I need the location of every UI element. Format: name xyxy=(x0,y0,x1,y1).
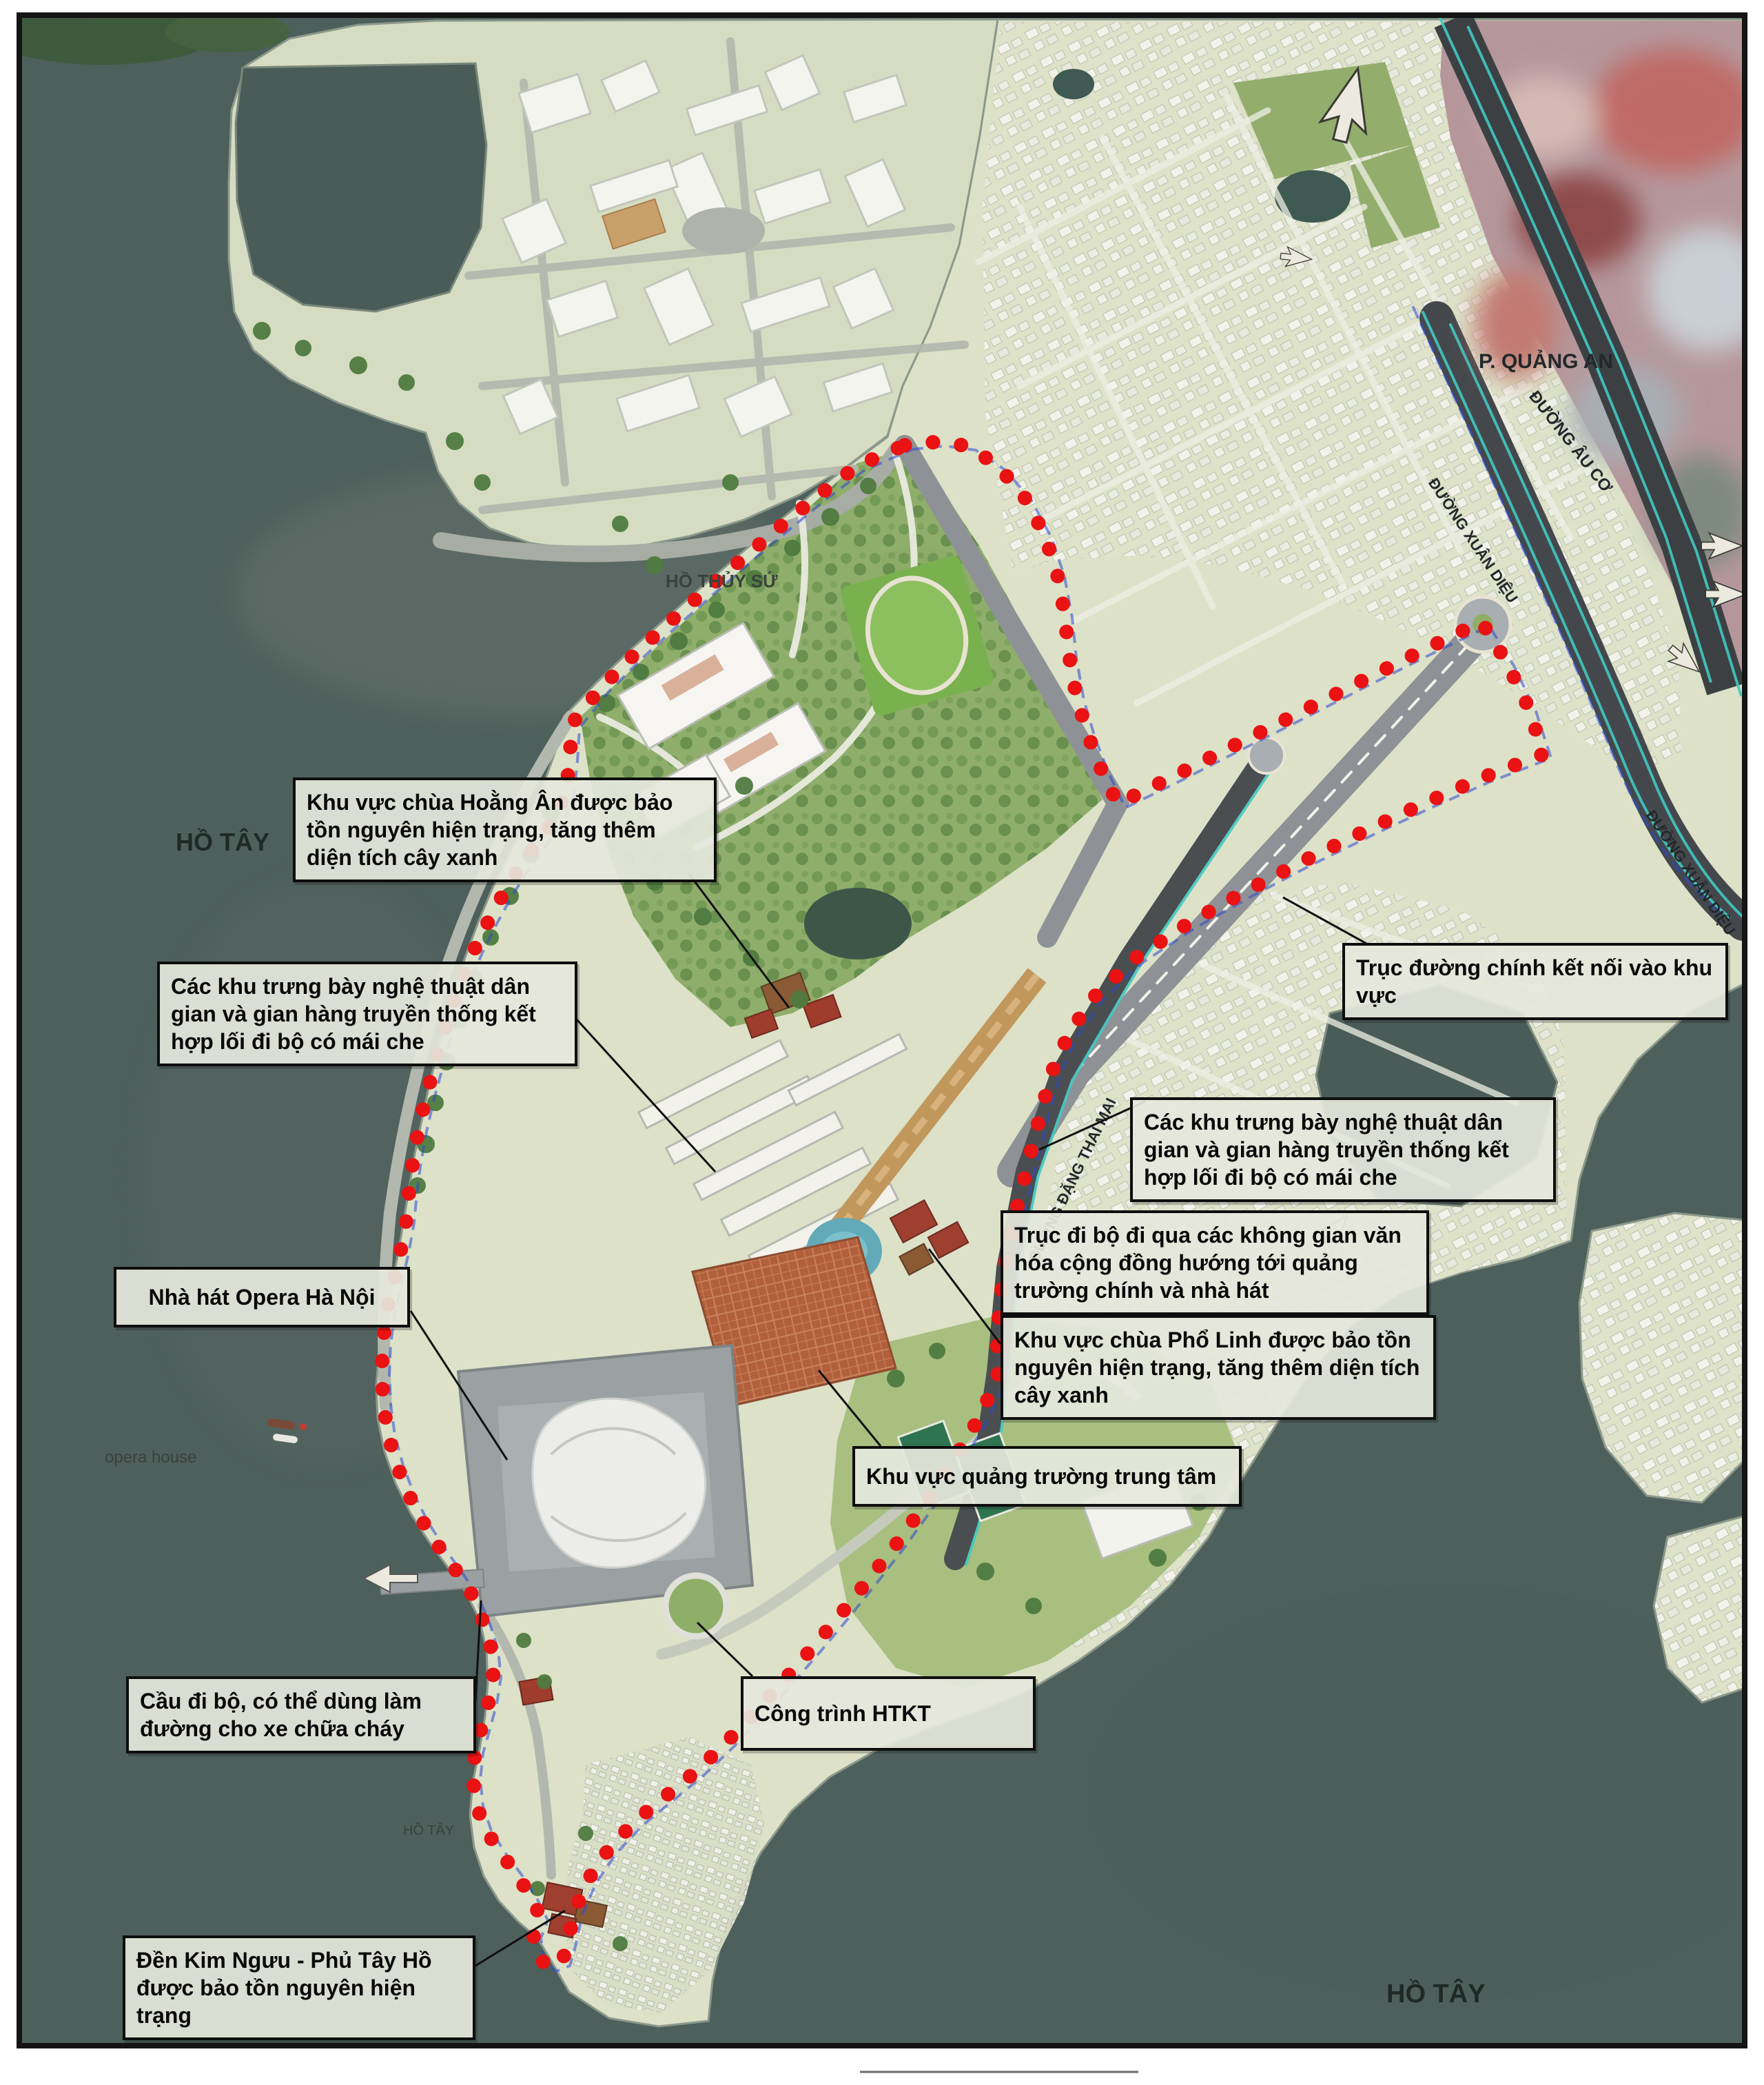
callout-text: Nhà hát Opera Hà Nội xyxy=(149,1285,376,1310)
callout-text: Trục đi bộ đi qua các không gian văn hóa… xyxy=(1014,1223,1402,1303)
callout-text: Các khu trưng bày nghệ thuật dân gian và… xyxy=(1144,1110,1509,1190)
callout-truc-duong-chinh: Trục đường chính kết nối vào khu vực xyxy=(1342,943,1728,1020)
callout-text: Khu vực chùa Hoằng Ân được bảo tồn nguyê… xyxy=(307,790,673,870)
label-ho-thuy-su: HỒ THỦY SỨ xyxy=(666,570,778,591)
label-opera-house-en: opera house xyxy=(105,1448,196,1467)
callout-text: Các khu trưng bày nghệ thuật dân gian và… xyxy=(171,974,536,1054)
htkt-structure xyxy=(666,1576,726,1636)
callout-text: Khu vực quảng trường trung tâm xyxy=(866,1464,1216,1489)
callout-text: Cầu đi bộ, có thể dùng làm đường cho xe … xyxy=(140,1689,422,1741)
label-ho-tay-south: HỒ TÂY xyxy=(1386,1978,1486,2008)
callout-truc-di-bo: Trục đi bộ đi qua các không gian văn hóa… xyxy=(1001,1210,1429,1315)
label-ho-tay-west: HỒ TÂY xyxy=(176,827,269,856)
callout-opera: Nhà hát Opera Hà Nội xyxy=(114,1267,410,1328)
callout-text: Trục đường chính kết nối vào khu vực xyxy=(1356,955,1712,1008)
callout-pho-linh: Khu vực chùa Phổ Linh được bảo tồn nguyê… xyxy=(1001,1315,1436,1420)
label-p-quang-an: P. QUẢNG AN xyxy=(1479,349,1613,373)
callout-cau-di-bo: Cầu đi bộ, có thể dùng làm đường cho xe … xyxy=(126,1676,476,1753)
pond-hoang-an xyxy=(804,888,912,959)
callout-trung-bay-left: Các khu trưng bày nghệ thuật dân gian và… xyxy=(157,962,577,1066)
callout-kim-nguu: Đền Kim Ngưu - Phủ Tây Hồ được bảo tồn n… xyxy=(123,1935,475,2040)
callout-quang-truong: Khu vực quảng trường trung tâm xyxy=(852,1446,1242,1507)
callout-htkt: Công trình HTKT xyxy=(741,1676,1036,1751)
lake-northwest xyxy=(236,63,486,312)
callout-hoang-an: Khu vực chùa Hoằng Ân được bảo tồn nguyê… xyxy=(293,777,717,882)
label-ho-tay-small: HỒ TÂY xyxy=(403,1822,454,1838)
callout-text: Đền Kim Ngưu - Phủ Tây Hồ được bảo tồn n… xyxy=(136,1948,432,2028)
callout-text: Công trình HTKT xyxy=(755,1701,931,1726)
callout-trung-bay-right: Các khu trưng bày nghệ thuật dân gian và… xyxy=(1130,1097,1556,1202)
callout-text: Khu vực chùa Phổ Linh được bảo tồn nguyê… xyxy=(1014,1328,1419,1407)
